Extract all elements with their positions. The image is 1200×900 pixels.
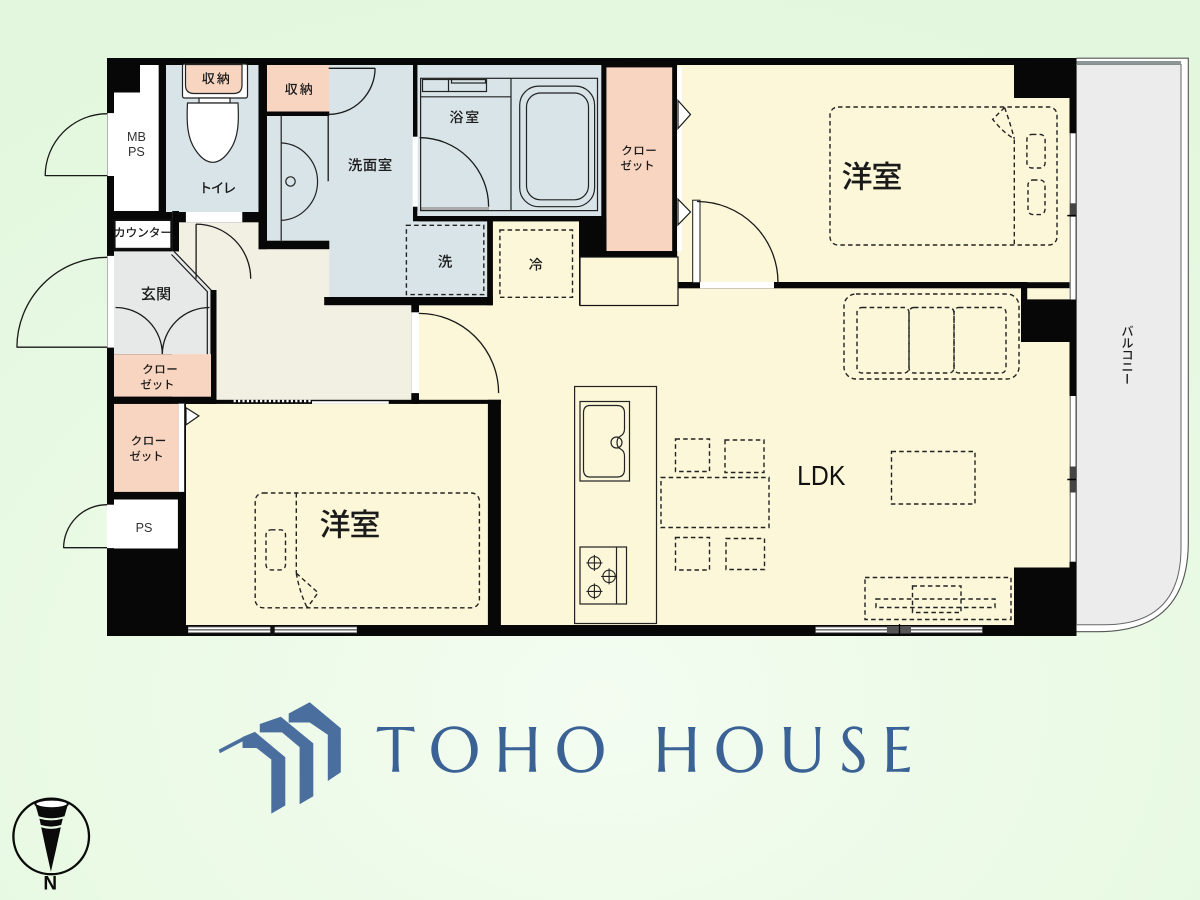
svg-text:PS: PS: [136, 521, 153, 535]
svg-text:LDK: LDK: [797, 460, 846, 491]
svg-text:MB: MB: [127, 130, 146, 144]
svg-text:PS: PS: [128, 145, 145, 159]
svg-text:N: N: [43, 874, 57, 895]
